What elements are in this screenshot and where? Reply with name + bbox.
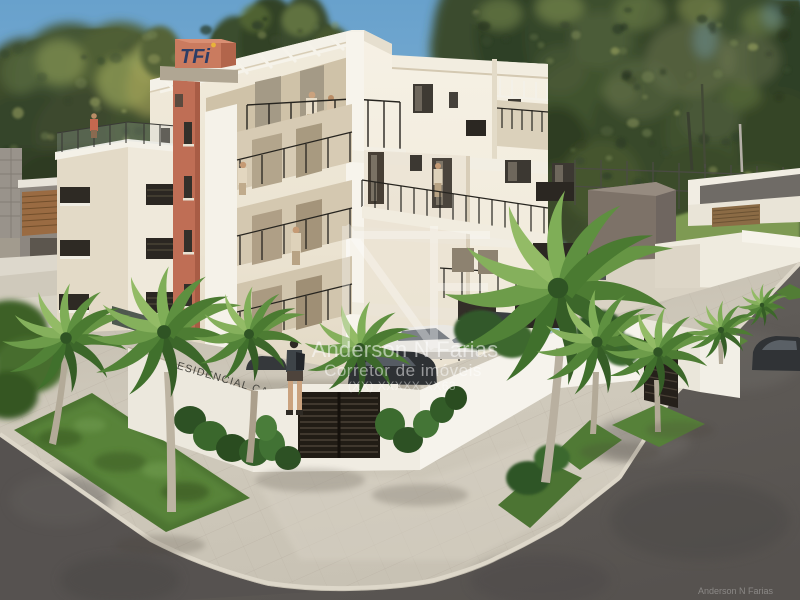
svg-text:Anderson N Farias: Anderson N Farias — [312, 337, 499, 362]
svg-text:(XX) XXXXX-XX63: (XX) XXXXX-XX63 — [348, 379, 456, 393]
svg-text:Corretor de imóveis: Corretor de imóveis — [324, 361, 482, 380]
svg-text:Anderson N Farias: Anderson N Farias — [698, 586, 774, 596]
svg-text:TFi: TFi — [180, 46, 210, 68]
